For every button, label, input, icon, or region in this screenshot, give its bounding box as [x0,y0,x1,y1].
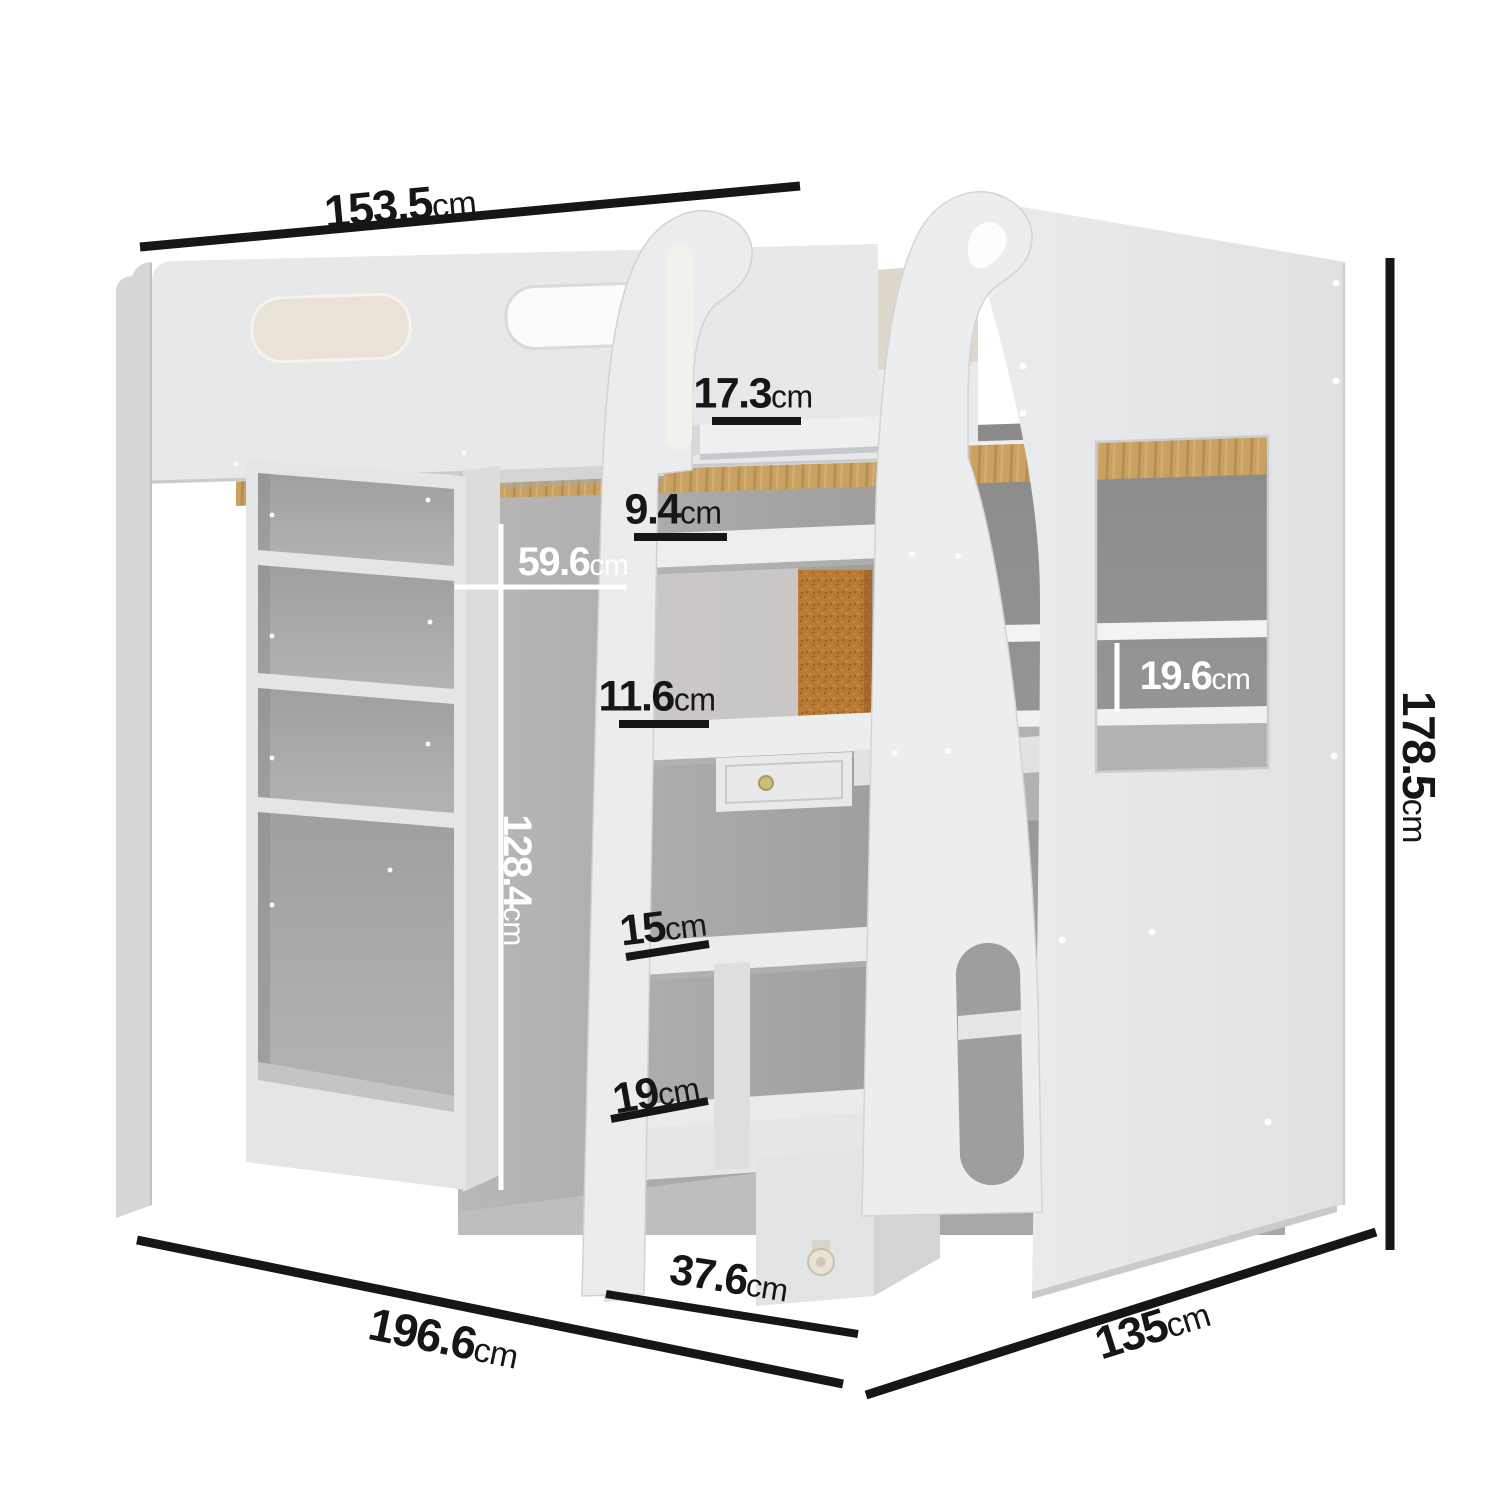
bookcase-opening-4 [258,812,454,1096]
dimension-value: 15 [617,902,667,955]
bookcase-opening-shadow [258,688,270,798]
dimension-unit: cm [589,549,628,582]
headboard-cutout-left [251,293,411,362]
dimension-value: 59.6 [518,540,590,584]
dimension-label-top-step: 17.3cm [693,373,812,416]
dimension-value: 19 [609,1069,661,1124]
screw-hole [388,868,393,873]
ladder-right-rail-lower-slot [956,943,1024,1185]
screw-hole [462,451,467,456]
dimension-label-wardrobe-width: 59.6cm [518,542,629,582]
dimension-unit: cm [674,682,716,718]
dimension-label-overall-height: 178.5cm [1396,691,1442,843]
dimension-label-cubby-height: 19.6cm [1140,656,1251,696]
dimension-unit: cm [1211,663,1250,696]
dimension-unit: cm [1395,799,1433,843]
dimension-diagram: 153.5cm 17.3cm 9.4cm 59.6cm 11.6cm 128.4… [0,0,1500,1500]
screw-hole [1020,363,1027,370]
dimension-value: 19.6 [1140,654,1212,698]
screw-hole [234,462,239,467]
screw-hole [270,903,275,908]
bookcase-opening-1 [258,473,454,566]
bookcase-opening-shadow [258,473,270,551]
dimension-label-third-step: 11.6cm [599,676,716,719]
bookcase-opening-shadow [258,812,270,1064]
dimension-label-wardrobe-height: 128.4cm [497,814,537,946]
dimension-unit: cm [655,1070,702,1113]
screw-hole [1059,937,1066,944]
dimension-unit: cm [497,907,530,946]
drawer-knob [759,776,773,790]
dimension-unit: cm [771,379,813,415]
screw-hole [426,742,431,747]
bookcase-opening-3 [258,688,454,813]
dimension-label-second-step: 9.4cm [625,489,722,532]
storage-unit-divider [714,962,750,1170]
caster-wheel-hub [816,1257,826,1267]
dimension-unit: cm [680,495,722,531]
bookcase-opening-shadow [258,565,270,674]
dimension-value: 128.4 [495,814,539,907]
dimension-value: 178.5 [1393,691,1445,799]
screw-hole [1020,410,1027,417]
dimension-unit: cm [430,184,478,226]
screw-hole [955,553,961,559]
screw-hole [270,756,275,761]
screw-hole [892,750,898,756]
screw-hole [428,620,433,625]
ladder-left-rail-hand-slot [666,244,694,450]
dimension-value: 17.3 [693,370,771,418]
screw-hole [1333,378,1340,385]
dimension-unit: cm [663,906,709,947]
screw-hole [270,513,275,518]
dimension-unit: cm [744,1267,791,1309]
screw-hole [1149,929,1156,936]
screw-hole [909,551,915,557]
dimension-value: 153.5 [322,176,434,238]
screw-hole [1333,280,1340,287]
bookcase-opening-2 [258,565,454,689]
screw-hole [1265,1119,1272,1126]
screw-hole [945,748,951,754]
bookcase [246,460,500,1192]
dimension-value: 9.4 [625,486,680,534]
dimension-value: 11.6 [599,673,674,721]
screw-hole [1331,753,1338,760]
screw-hole [270,634,275,639]
screw-hole [426,498,431,503]
left-end-panel [116,262,152,1218]
